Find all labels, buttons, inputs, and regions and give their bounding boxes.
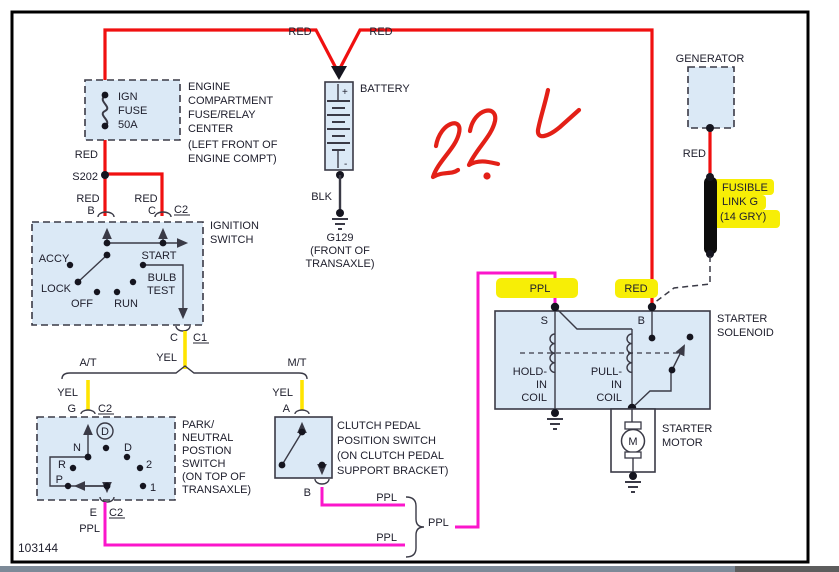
wire-label-yel: YEL: [57, 387, 78, 399]
wire-label-red: RED: [75, 149, 98, 161]
svg-text:POSITION SWITCH: POSITION SWITCH: [337, 435, 436, 447]
position-1: 1: [150, 482, 156, 494]
wire-label-ppl: PPL: [376, 532, 397, 544]
position-p: P: [56, 474, 63, 486]
terminal-c-label: C: [170, 332, 178, 344]
starter-motor-label2: MOTOR: [662, 437, 703, 449]
connector-c1-label: C1: [193, 332, 207, 344]
svg-text:(ON CLUTCH PEDAL: (ON CLUTCH PEDAL: [337, 450, 444, 462]
connector-c2-label: C2: [174, 204, 188, 216]
terminal-b-label: B: [304, 487, 311, 499]
solenoid-label: STARTER: [717, 313, 767, 325]
svg-text:IN: IN: [536, 379, 547, 391]
ignition-switch: ACCY LOCK OFF RUN START BULB TEST: [32, 212, 203, 331]
ignition-switch-label2: SWITCH: [210, 234, 253, 246]
wire-label-red: RED: [288, 26, 311, 38]
position-off: OFF: [71, 298, 93, 310]
position-r: R: [58, 459, 66, 471]
wire-label-ppl: PPL: [530, 283, 551, 295]
terminal-b-label: B: [638, 315, 645, 327]
wire-label-ppl: PPL: [376, 492, 397, 504]
fuse-name: IGN: [118, 91, 138, 103]
wire-label-yel: YEL: [156, 352, 177, 364]
starter-motor: M: [611, 408, 655, 476]
position-2: 2: [146, 459, 152, 471]
starter-motor-label: STARTER: [662, 423, 712, 435]
position-n: N: [73, 442, 81, 454]
svg-text:ENGINE: ENGINE: [188, 81, 230, 93]
terminal-s-label: S: [541, 315, 548, 327]
svg-text:CENTER: CENTER: [188, 123, 233, 135]
position-test: TEST: [147, 285, 175, 297]
svg-text:COMPARTMENT: COMPARTMENT: [188, 95, 273, 107]
svg-text:(ON TOP OF: (ON TOP OF: [182, 471, 246, 483]
terminal-e-label: E: [90, 507, 97, 519]
ignition-switch-label: IGNITION: [210, 220, 259, 232]
wire-label-red: RED: [624, 283, 647, 295]
scrollbar-horizontal[interactable]: [0, 566, 839, 572]
terminal-g-label: G: [67, 403, 76, 415]
svg-text:IN: IN: [611, 379, 622, 391]
svg-text:FUSE/RELAY: FUSE/RELAY: [188, 109, 256, 121]
motor-m-label: M: [628, 436, 637, 448]
starter-solenoid: S B HOLD- IN COIL PULL- IN COIL: [495, 303, 710, 412]
fusible-link-label: FUSIBLE: [722, 182, 768, 194]
wire-label-yel: YEL: [272, 387, 293, 399]
ground-g129-note2: TRANSAXLE): [305, 258, 374, 270]
solenoid-label2: SOLENOID: [717, 327, 774, 339]
wire-label-red: RED: [134, 193, 157, 205]
svg-text:SUPPORT BRACKET): SUPPORT BRACKET): [337, 465, 448, 477]
branch-at-label: A/T: [79, 357, 96, 369]
svg-text:COIL: COIL: [596, 392, 622, 404]
svg-text:NEUTRAL: NEUTRAL: [182, 432, 233, 444]
svg-text:ENGINE COMPT): ENGINE COMPT): [188, 153, 277, 165]
svg-text:POSTION: POSTION: [182, 445, 232, 457]
terminal-b-label: B: [87, 205, 94, 217]
wire-label-ppl: PPL: [428, 517, 449, 529]
position-lock: LOCK: [41, 283, 72, 295]
position-d-circled: D: [101, 426, 109, 438]
connector-c2-label: C2: [98, 403, 112, 415]
wire-label-red: RED: [683, 148, 706, 160]
fusible-link-label2: LINK G: [722, 196, 758, 208]
generator-label: GENERATOR: [676, 53, 745, 65]
scrollbar-track[interactable]: [735, 566, 839, 572]
svg-text:HOLD-: HOLD-: [513, 366, 548, 378]
position-d: D: [124, 442, 132, 454]
wire-label-ppl: PPL: [79, 523, 100, 535]
fuse-name2: FUSE: [118, 105, 147, 117]
position-run: RUN: [114, 298, 138, 310]
branch-mt-label: M/T: [288, 357, 307, 369]
wire-label-red: RED: [369, 26, 392, 38]
splice-s202-label: S202: [72, 171, 98, 183]
starter-circuit-diagram: RED RED IGN FUSE 50A ENGINE COMPARTMENT …: [0, 0, 839, 572]
svg-text:COIL: COIL: [521, 392, 547, 404]
svg-text:TRANSAXLE): TRANSAXLE): [182, 484, 251, 496]
generator-box: [688, 67, 734, 128]
scrollbar-thumb[interactable]: [0, 566, 735, 572]
wiring-diagram-page: RED RED IGN FUSE 50A ENGINE COMPARTMENT …: [0, 0, 839, 572]
clutch-pedal-switch: [275, 417, 332, 484]
battery-minus: -: [344, 159, 347, 170]
ground-g129-note: (FRONT OF: [310, 245, 370, 257]
position-accy: ACCY: [39, 253, 70, 265]
fusible-link-symbol: [704, 177, 717, 254]
position-bulb: BULB: [148, 272, 177, 284]
splice-s202-dot: [101, 171, 109, 179]
svg-text:CLUTCH PEDAL: CLUTCH PEDAL: [337, 420, 421, 432]
fuse-rating: 50A: [118, 119, 138, 131]
park-neutral-switch: D N D R 2 P 1: [37, 417, 175, 502]
wire-label-red: RED: [76, 193, 99, 205]
fuse-relay-center: IGN FUSE 50A: [85, 80, 180, 140]
ground-g129-label: G129: [327, 232, 354, 244]
battery-label: BATTERY: [360, 83, 410, 95]
battery: + -: [325, 82, 353, 170]
fusible-link-label3: (14 GRY): [720, 211, 766, 223]
svg-text:(LEFT FRONT OF: (LEFT FRONT OF: [188, 139, 278, 151]
doc-number: 103144: [18, 541, 58, 555]
terminal-a-label: A: [283, 403, 291, 415]
svg-text:PULL-: PULL-: [591, 366, 623, 378]
position-start: START: [141, 250, 176, 262]
svg-text:PARK/: PARK/: [182, 419, 215, 431]
svg-text:SWITCH: SWITCH: [182, 458, 225, 470]
wire-label-blk: BLK: [311, 191, 332, 203]
battery-plus: +: [342, 87, 348, 98]
connector-c2-label: C2: [109, 507, 123, 519]
